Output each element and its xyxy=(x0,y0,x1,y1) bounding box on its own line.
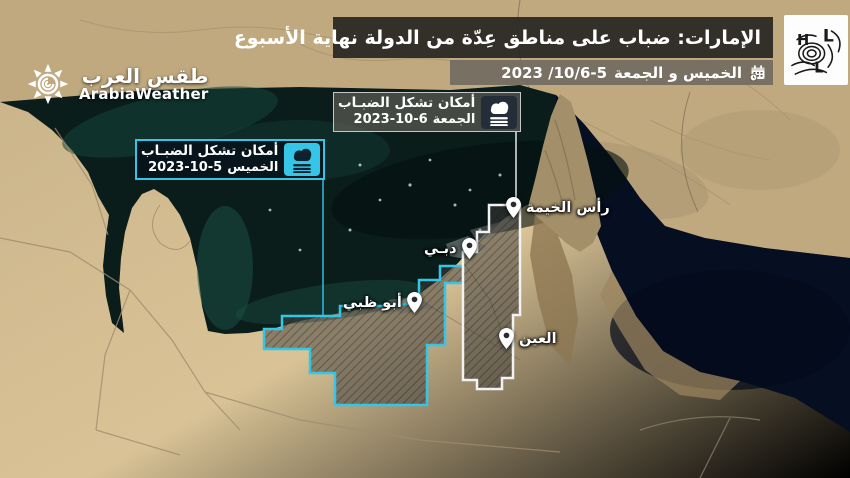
legend-friday: أمكان تشكل الضبـاب 2023-10-6 الجمعة xyxy=(333,92,521,132)
headline-text: الإمارات: ضباب على مناطق عِدّة من الدولة… xyxy=(222,27,773,49)
brand-arabic: طقس العرب xyxy=(79,66,208,87)
date-numbers: 2023 /10/6-5 xyxy=(501,64,607,82)
headline-bar: الإمارات: ضباب على مناطق عِدّة من الدولة… xyxy=(333,17,773,58)
brand-english: ArabiaWeather xyxy=(79,87,208,103)
svg-text:H: H xyxy=(797,32,809,49)
date-bar: 2023 /10/6-5 الخميس و الجمعة xyxy=(450,60,773,85)
weather-logo-box: H L L xyxy=(784,15,848,85)
map-pin-icon xyxy=(506,197,521,218)
legend-thursday-title: أمكان تشكل الضبـاب xyxy=(141,143,278,160)
fog-icon-friday xyxy=(481,96,517,129)
city-label-abu-dhabi: أبو ظبي xyxy=(343,292,422,313)
map-pin-icon xyxy=(407,292,422,313)
fog-icon-thursday xyxy=(284,143,320,176)
legend-friday-day: الجمعة xyxy=(433,112,476,128)
svg-text:L: L xyxy=(814,59,823,76)
weather-map-infographic: الإمارات: ضباب على مناطق عِدّة من الدولة… xyxy=(0,0,850,478)
legend-friday-date: 2023-10-6 xyxy=(354,112,428,128)
legend-thursday: أمكان تشكل الضبـاب 2023-10-5 الخميس xyxy=(135,139,325,180)
city-label-ras-al-khaimah: رأس الخيمة xyxy=(506,197,610,218)
arabiaweather-brand: طقس العرب ArabiaWeather xyxy=(26,62,208,106)
city-label-al-ain: العين xyxy=(499,328,557,349)
svg-text:L: L xyxy=(823,26,834,46)
city-label-dubai: دبـي xyxy=(424,238,477,259)
legend-friday-title: أمكان تشكل الضبـاب xyxy=(338,95,475,112)
legend-thursday-day: الخميس xyxy=(227,160,278,176)
iran-ridge xyxy=(680,110,840,190)
map-pin-icon xyxy=(462,238,477,259)
legend-thursday-date: 2023-10-5 xyxy=(148,160,222,176)
arabiaweather-sun-icon xyxy=(26,62,70,106)
date-words: الخميس و الجمعة xyxy=(614,64,742,82)
map-pin-icon xyxy=(499,328,514,349)
pressure-map-icon: H L L xyxy=(788,19,844,81)
calendar-clock-icon xyxy=(749,64,767,82)
